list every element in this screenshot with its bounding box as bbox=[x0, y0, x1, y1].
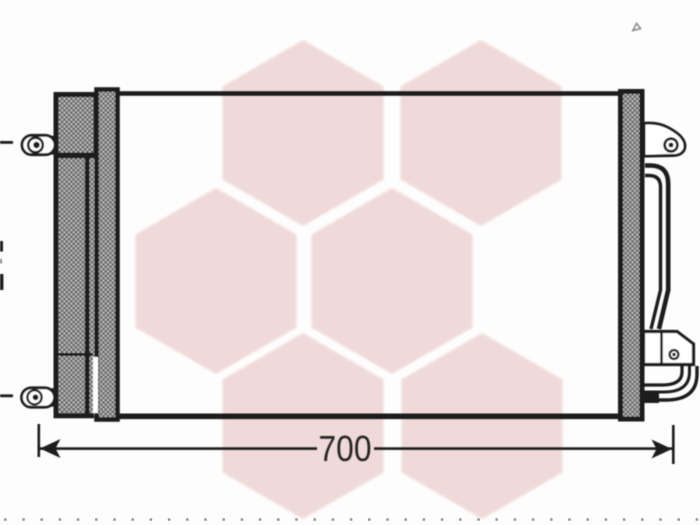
svg-text:700: 700 bbox=[319, 428, 372, 469]
